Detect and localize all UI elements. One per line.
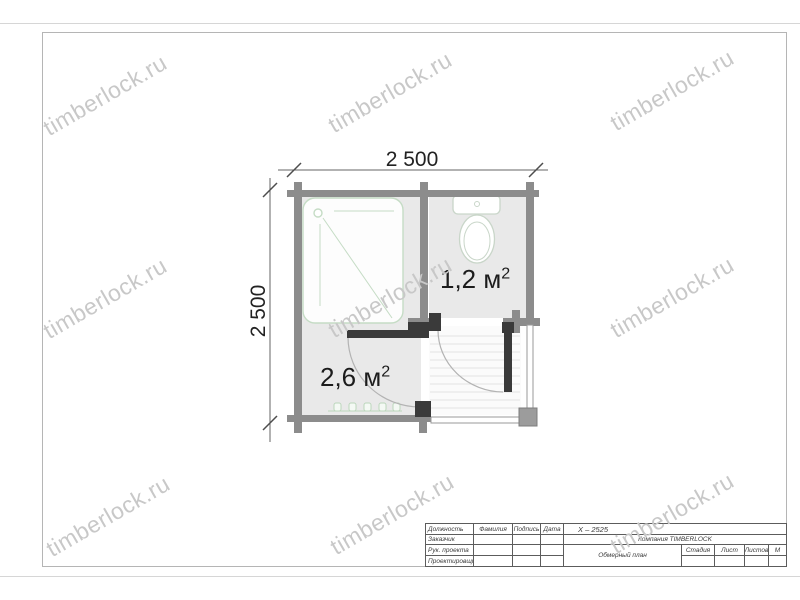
page-bottom-edge <box>0 576 800 577</box>
tb-empty-cell <box>745 556 769 566</box>
page-top-edge <box>0 23 800 24</box>
tb-sheets-header: Листов <box>745 545 769 556</box>
tb-project-lead-label: Рук. проекта <box>426 545 474 556</box>
tb-project-code: X – 2525 <box>564 524 786 535</box>
tb-empty-cell <box>474 556 513 566</box>
room-shower-label: 2,6 м2 <box>320 362 390 393</box>
title-block: Должность Фамилия Подпись Дата X – 2525 … <box>425 523 787 567</box>
tb-empty-cell <box>513 545 541 556</box>
tb-empty-cell <box>474 545 513 556</box>
tb-empty-cell <box>541 535 564 545</box>
tb-empty-cell <box>513 556 541 566</box>
room-wc-sup: 2 <box>501 264 510 282</box>
tb-empty-cell <box>541 545 564 556</box>
tb-scale-header: М <box>769 545 786 556</box>
dimension-top-label: 2 500 <box>372 148 452 172</box>
tb-designer-label: Проектировщик <box>426 556 474 566</box>
tb-customer-label: Заказчик <box>426 535 474 545</box>
tb-empty-cell <box>682 556 715 566</box>
tb-company: Компания TIMBERLOCK <box>564 535 786 545</box>
room-wc-label: 1,2 м2 <box>440 264 510 295</box>
tb-empty-cell <box>474 535 513 545</box>
tb-empty-cell <box>769 556 786 566</box>
room-shower-area: 2,6 м <box>320 362 381 392</box>
tb-position-header: Должность <box>426 524 474 535</box>
room-wc-area: 1,2 м <box>440 264 501 294</box>
tb-empty-cell <box>513 535 541 545</box>
tb-empty-cell <box>715 556 745 566</box>
drawing-frame <box>42 32 787 567</box>
tb-empty-cell <box>541 556 564 566</box>
tb-drawing-title: Обмерный план <box>564 545 682 566</box>
tb-date-header: Дата <box>541 524 564 535</box>
room-shower-sup: 2 <box>381 362 390 380</box>
tb-signature-header: Подпись <box>513 524 541 535</box>
tb-sheet-header: Лист <box>715 545 745 556</box>
tb-stage-header: Стадия <box>682 545 715 556</box>
tb-name-header: Фамилия <box>474 524 513 535</box>
drawing-sheet: 2 500 2 500 1,2 м2 2,6 м2 Должность Фами… <box>0 0 800 600</box>
dimension-left-label: 2 500 <box>247 281 269 341</box>
